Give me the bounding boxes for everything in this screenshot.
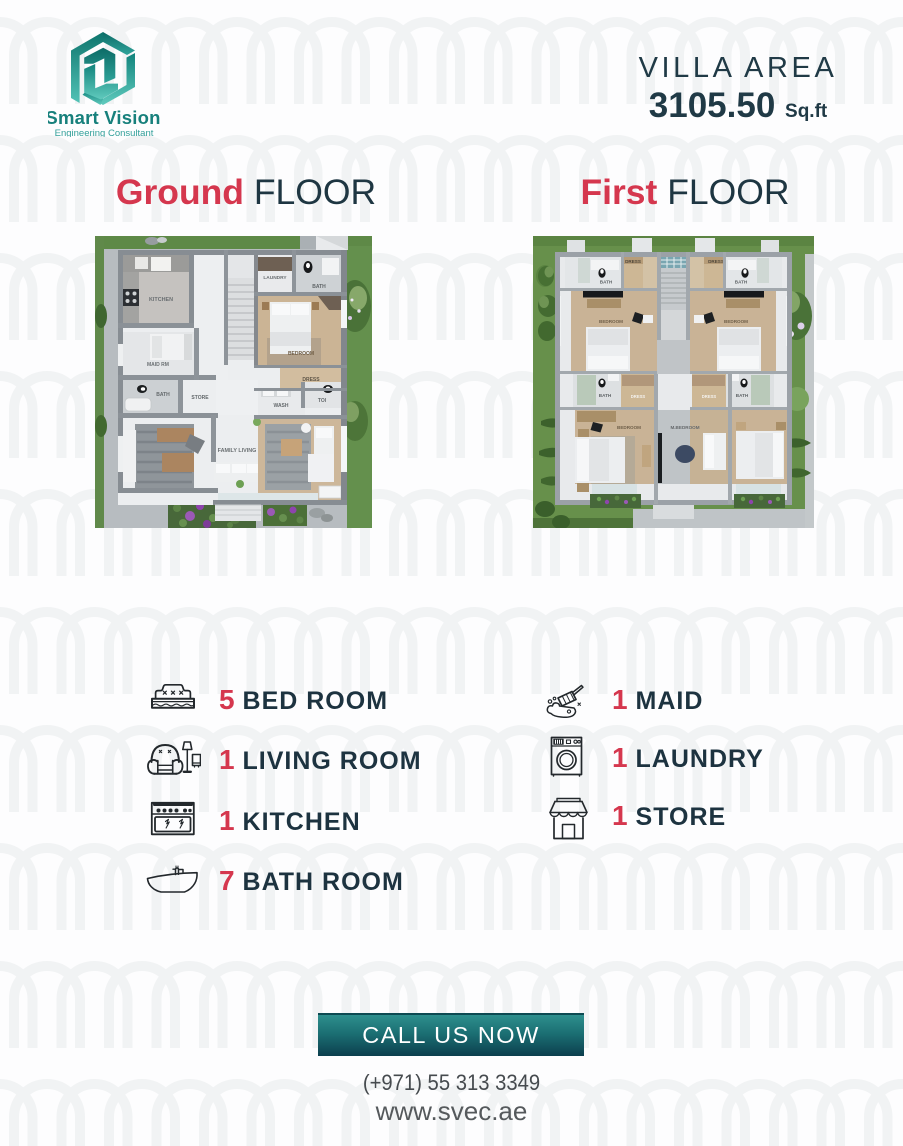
svg-text:DRESS: DRESS <box>708 259 724 264</box>
svg-text:DRESS: DRESS <box>625 259 641 264</box>
svg-text:BATH: BATH <box>735 280 748 285</box>
svg-text:BATH: BATH <box>736 393 749 398</box>
svg-text:KITCHEN: KITCHEN <box>149 297 173 303</box>
svg-text:BATH: BATH <box>599 393 612 398</box>
svg-text:FAMILY LIVING: FAMILY LIVING <box>218 448 257 454</box>
svg-text:M.BEDROOM: M.BEDROOM <box>670 425 699 430</box>
svg-text:LAUNDRY: LAUNDRY <box>263 275 287 281</box>
svg-text:BATH: BATH <box>156 392 170 398</box>
svg-text:MAID RM: MAID RM <box>147 362 169 368</box>
svg-text:DRESS: DRESS <box>702 394 717 399</box>
svg-text:BEDROOM: BEDROOM <box>599 319 623 324</box>
svg-text:BATH: BATH <box>600 280 613 285</box>
svg-text:DRESS: DRESS <box>631 394 646 399</box>
svg-text:TOI: TOI <box>318 398 327 404</box>
svg-text:BEDROOM: BEDROOM <box>288 351 314 357</box>
svg-text:STORE: STORE <box>191 395 209 401</box>
svg-text:BATH: BATH <box>312 284 326 290</box>
svg-text:Engineering Consultant: Engineering Consultant <box>55 128 154 137</box>
svg-text:BEDROOM: BEDROOM <box>724 319 748 324</box>
svg-text:Smart Vision: Smart Vision <box>48 107 161 128</box>
svg-text:BEDROOM: BEDROOM <box>617 425 641 430</box>
svg-text:WASH: WASH <box>274 403 289 409</box>
